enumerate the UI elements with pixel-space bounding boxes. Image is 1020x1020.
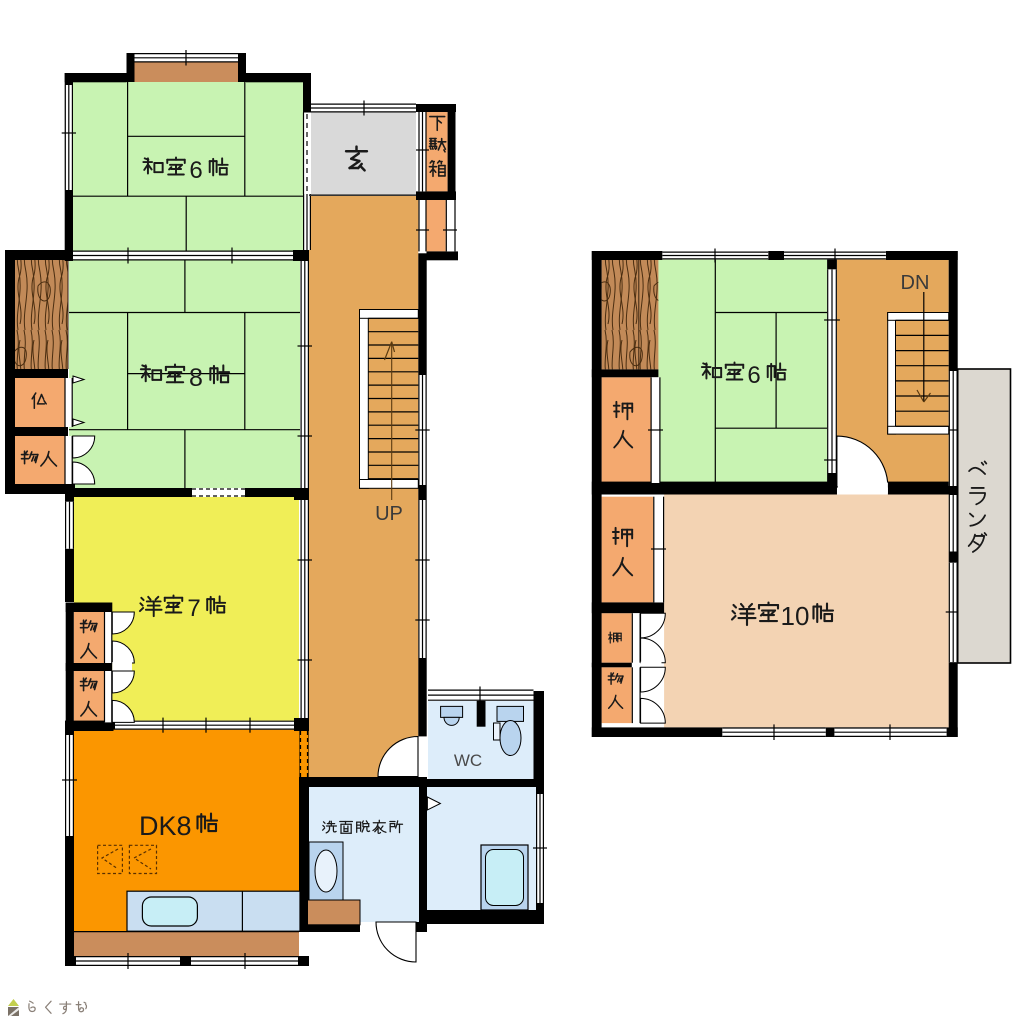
svg-text:DK8: DK8 [139, 811, 192, 841]
svg-text:DN: DN [901, 272, 930, 294]
svg-text:7: 7 [187, 595, 200, 622]
svg-text:6: 6 [747, 362, 760, 389]
svg-text:8: 8 [189, 364, 203, 392]
svg-text:UP: UP [375, 503, 403, 525]
svg-text:10: 10 [781, 601, 810, 631]
svg-text:WC: WC [454, 751, 482, 770]
svg-text:6: 6 [189, 157, 202, 184]
